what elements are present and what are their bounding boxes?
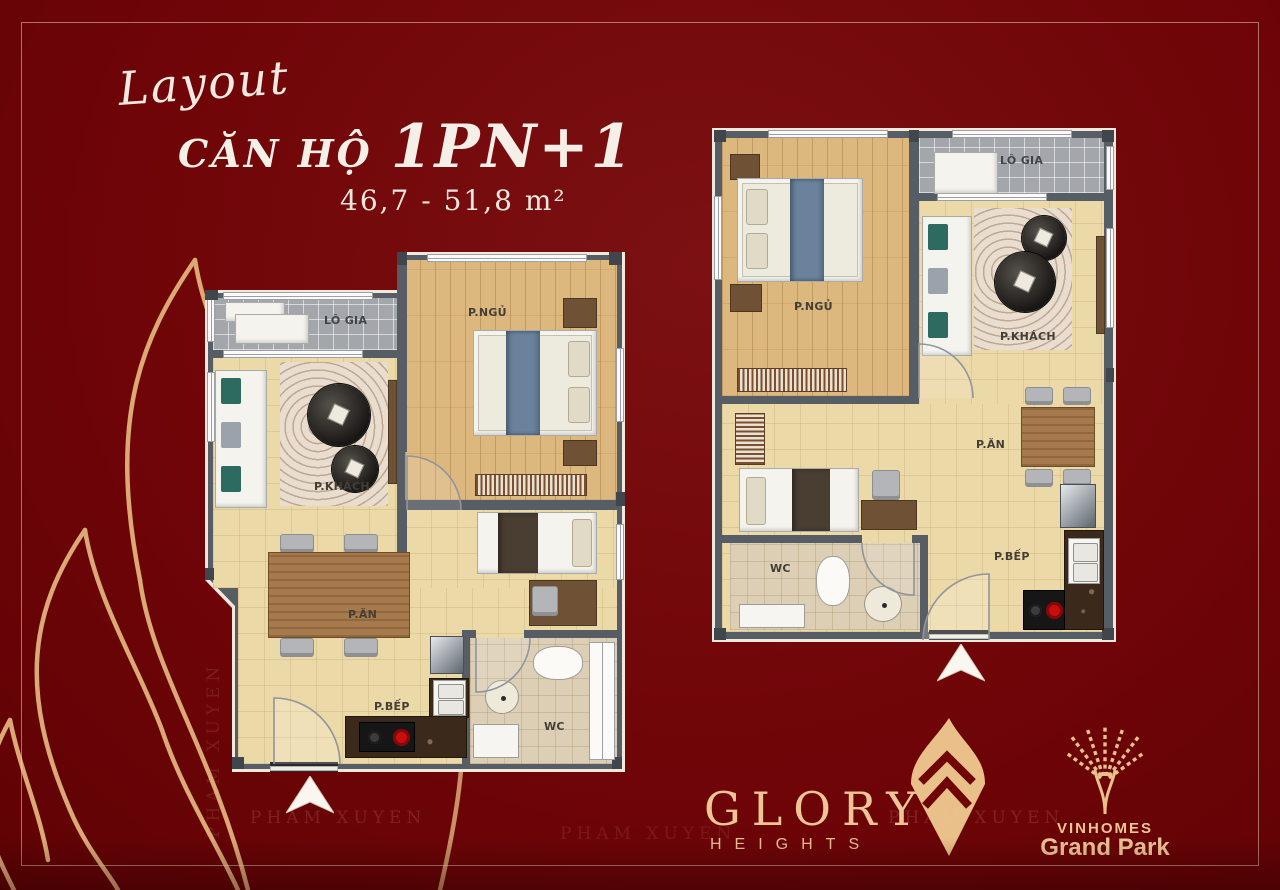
balcony-bench	[235, 314, 309, 344]
desk-chair	[532, 586, 558, 616]
wall-pier	[609, 252, 622, 265]
dresser-vertical	[735, 413, 765, 465]
sofa-cushion	[221, 378, 241, 404]
wall-wc-corner	[912, 535, 920, 543]
washing-machine	[934, 152, 998, 194]
wall-wc-top-a	[462, 630, 476, 638]
drain	[501, 696, 506, 701]
bed-pillow	[746, 189, 768, 225]
wall-pier	[909, 130, 919, 142]
room-label-bedroom: P.NGỦ	[468, 306, 507, 319]
vanity	[739, 604, 805, 628]
wall-bedroom-bottom	[447, 500, 617, 510]
double-bed	[473, 330, 597, 436]
room-label-living: P.KHÁCH	[1000, 330, 1056, 343]
title-unit-label: CĂN HỘ	[178, 131, 373, 176]
window-balcony-top	[952, 130, 1072, 138]
sink-bowl	[1073, 563, 1098, 582]
sofa-cushion	[928, 312, 948, 338]
bed-pillow	[572, 519, 592, 567]
sink-bowl	[1073, 543, 1098, 562]
title-script: Layout	[116, 50, 291, 116]
wall-wc-right	[920, 535, 928, 632]
room-label-bedroom: P.NGỦ	[794, 300, 833, 313]
dining-chair	[1025, 387, 1053, 405]
poster-background: Layout CĂN HỘ 1PN+1 46,7 - 51,8 m²	[0, 0, 1280, 890]
bed-blanket	[792, 469, 830, 531]
table-decor	[1034, 228, 1054, 248]
wall-bedroom-bottom-b	[902, 396, 919, 404]
window-bedroom-left	[714, 196, 722, 280]
balcony-sliding-door	[937, 193, 1047, 201]
title-line: CĂN HỘ 1PN+1	[178, 112, 634, 182]
room-label-dining: P.ĂN	[976, 438, 1005, 451]
round-sink	[485, 680, 519, 714]
desk	[861, 500, 917, 530]
wall-pier	[714, 628, 726, 640]
wall-pier	[205, 568, 214, 580]
entrance-sill	[270, 766, 338, 771]
burner	[1029, 604, 1042, 617]
window-bedroom-top	[768, 130, 888, 138]
dresser	[475, 474, 587, 496]
window-balcony-left	[207, 298, 215, 342]
glory-flame-icon	[903, 716, 991, 858]
window-bedroom-right	[616, 348, 624, 422]
sofa-cushion	[221, 422, 241, 448]
watermark: PHAM XUYEN	[250, 808, 426, 828]
room-label-wc: WC	[770, 562, 791, 575]
tv-cabinet	[388, 380, 397, 484]
title-area-range: 46,7 - 51,8 m²	[340, 184, 567, 217]
nightstand	[730, 154, 760, 180]
balcony-sliding-door	[223, 350, 363, 358]
table-decor	[327, 403, 350, 426]
sofa-cushion	[221, 466, 241, 492]
wall-pier	[1102, 130, 1114, 142]
coffee-table-large	[995, 252, 1055, 312]
watermark: PHAM XUYEN	[888, 808, 1064, 828]
dining-table	[1021, 407, 1095, 467]
wall-wc-top	[722, 535, 862, 543]
single-bed	[477, 512, 597, 574]
double-bed	[737, 178, 863, 282]
window-bedroom-top	[427, 254, 587, 262]
entrance-arrow	[937, 644, 985, 682]
kitchen-sink	[433, 680, 466, 716]
bathtub	[589, 642, 615, 760]
room-label-living: P.KHÁCH	[314, 480, 370, 493]
dining-chair	[1063, 387, 1091, 405]
coffee-table-large	[308, 384, 370, 446]
desk-chair	[872, 470, 900, 500]
burner	[1046, 602, 1063, 619]
sink-bowl	[438, 684, 464, 699]
dining-chair	[280, 638, 314, 657]
toilet	[533, 646, 583, 680]
room-label-kitchen: P.BẾP	[994, 550, 1030, 563]
tv-cabinet	[1096, 236, 1105, 334]
table-decor	[345, 459, 365, 479]
wall-divider-upper	[909, 138, 919, 344]
window-balcony-right	[1106, 146, 1114, 190]
burner	[393, 729, 410, 746]
room-label-dining: P.ĂN	[348, 608, 377, 621]
window-living-left	[207, 372, 215, 442]
dining-chair	[280, 534, 314, 553]
dining-chair	[344, 534, 378, 553]
dresser	[737, 368, 847, 392]
nightstand	[563, 440, 597, 466]
floor-plan-left: LÔ GIA P.NGỦ P.KHÁCH P.ĂN P.BẾP WC	[192, 252, 628, 812]
dining-chair	[1025, 469, 1053, 487]
round-sink	[864, 586, 902, 622]
bed-pillow	[568, 387, 590, 423]
room-label-logia: LÔ GIA	[1000, 154, 1043, 167]
drain	[882, 603, 887, 608]
vinhomes-grand-park-icon	[1063, 718, 1147, 818]
room-label-kitchen: P.BẾP	[374, 700, 410, 713]
title-unit-type: 1PN+1	[391, 112, 635, 182]
wall-pier	[205, 290, 218, 300]
nightstand	[730, 284, 762, 312]
wall-divider-upper	[397, 252, 407, 452]
sofa-cushion	[928, 224, 948, 250]
bed-blanket	[506, 331, 540, 435]
wall-bedroom-bottom-a	[722, 396, 862, 404]
wall-pier	[1106, 368, 1114, 382]
wall-wc-top-b	[524, 630, 617, 638]
vanity	[473, 724, 519, 758]
cooktop	[359, 722, 415, 752]
dining-chair	[344, 638, 378, 657]
bed-blanket	[498, 513, 538, 573]
wall-pier	[397, 252, 407, 265]
bed-pillow	[568, 341, 590, 377]
wall-pier	[616, 492, 625, 506]
window-balcony-top	[223, 292, 373, 300]
room-label-logia: LÔ GIA	[324, 314, 367, 327]
kitchen-sink	[1068, 538, 1100, 584]
fridge	[1060, 484, 1096, 528]
wall-pier	[714, 130, 726, 142]
window-plus-one-right	[616, 524, 624, 580]
bed-pillow	[746, 233, 768, 269]
burner	[368, 731, 381, 744]
dining-table	[268, 552, 410, 638]
wall-pier	[232, 757, 244, 769]
floor-plan-right: LÔ GIA P.NGỦ P.KHÁCH P.ĂN P.BẾP WC	[712, 128, 1116, 688]
toilet	[816, 556, 850, 606]
sink-bowl	[438, 700, 464, 715]
single-bed	[739, 468, 859, 532]
bottom-shade	[0, 838, 1280, 890]
watermark-vertical: PHAM XUYEN	[204, 662, 224, 838]
fridge	[430, 636, 464, 674]
table-decor	[1013, 270, 1036, 293]
room-label-wc: WC	[544, 720, 565, 733]
bed-pillow	[746, 477, 766, 525]
cooktop	[1023, 590, 1065, 630]
entrance-sill	[929, 634, 989, 639]
wardrobe	[563, 298, 597, 328]
window-living-right	[1106, 228, 1114, 328]
bed-blanket	[790, 179, 824, 281]
sofa-cushion	[928, 268, 948, 294]
